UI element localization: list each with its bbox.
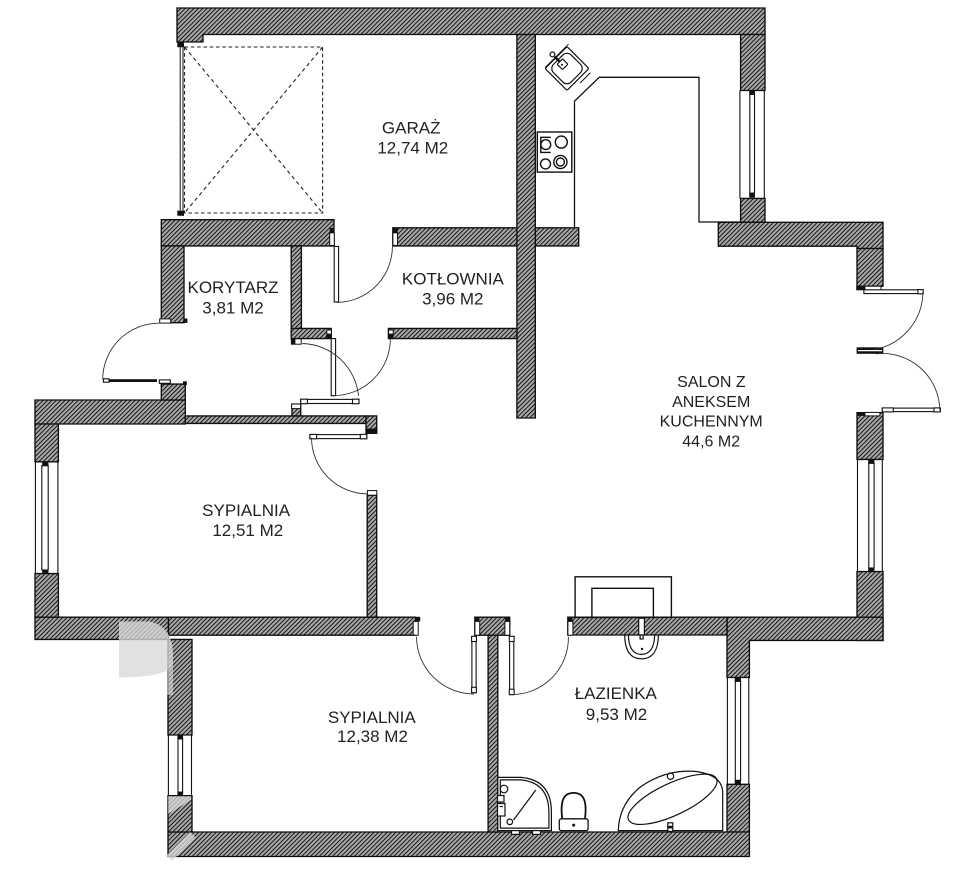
svg-text:12,74 M2: 12,74 M2 [377, 139, 448, 158]
svg-text:SYPIALNIA: SYPIALNIA [328, 708, 417, 727]
svg-text:ŁAZIENKA: ŁAZIENKA [575, 684, 658, 703]
svg-text:3,96 M2: 3,96 M2 [422, 290, 483, 309]
svg-text:12,38 M2: 12,38 M2 [337, 727, 408, 746]
svg-text:KORYTARZ: KORYTARZ [188, 278, 279, 297]
svg-text:GARAŻ: GARAŻ [382, 118, 441, 137]
svg-text:9,53 M2: 9,53 M2 [586, 705, 647, 724]
svg-text:SYPIALNIA: SYPIALNIA [202, 501, 291, 520]
svg-text:44,6 M2: 44,6 M2 [682, 433, 740, 450]
svg-text:SALON Z: SALON Z [677, 374, 746, 391]
svg-text:ANEKSEM: ANEKSEM [672, 394, 750, 411]
svg-text:KUCHENNYM: KUCHENNYM [660, 413, 763, 430]
svg-text:3,81 M2: 3,81 M2 [202, 298, 263, 317]
svg-text:KOTŁOWNIA: KOTŁOWNIA [402, 269, 505, 288]
svg-text:12,51 M2: 12,51 M2 [212, 521, 283, 540]
